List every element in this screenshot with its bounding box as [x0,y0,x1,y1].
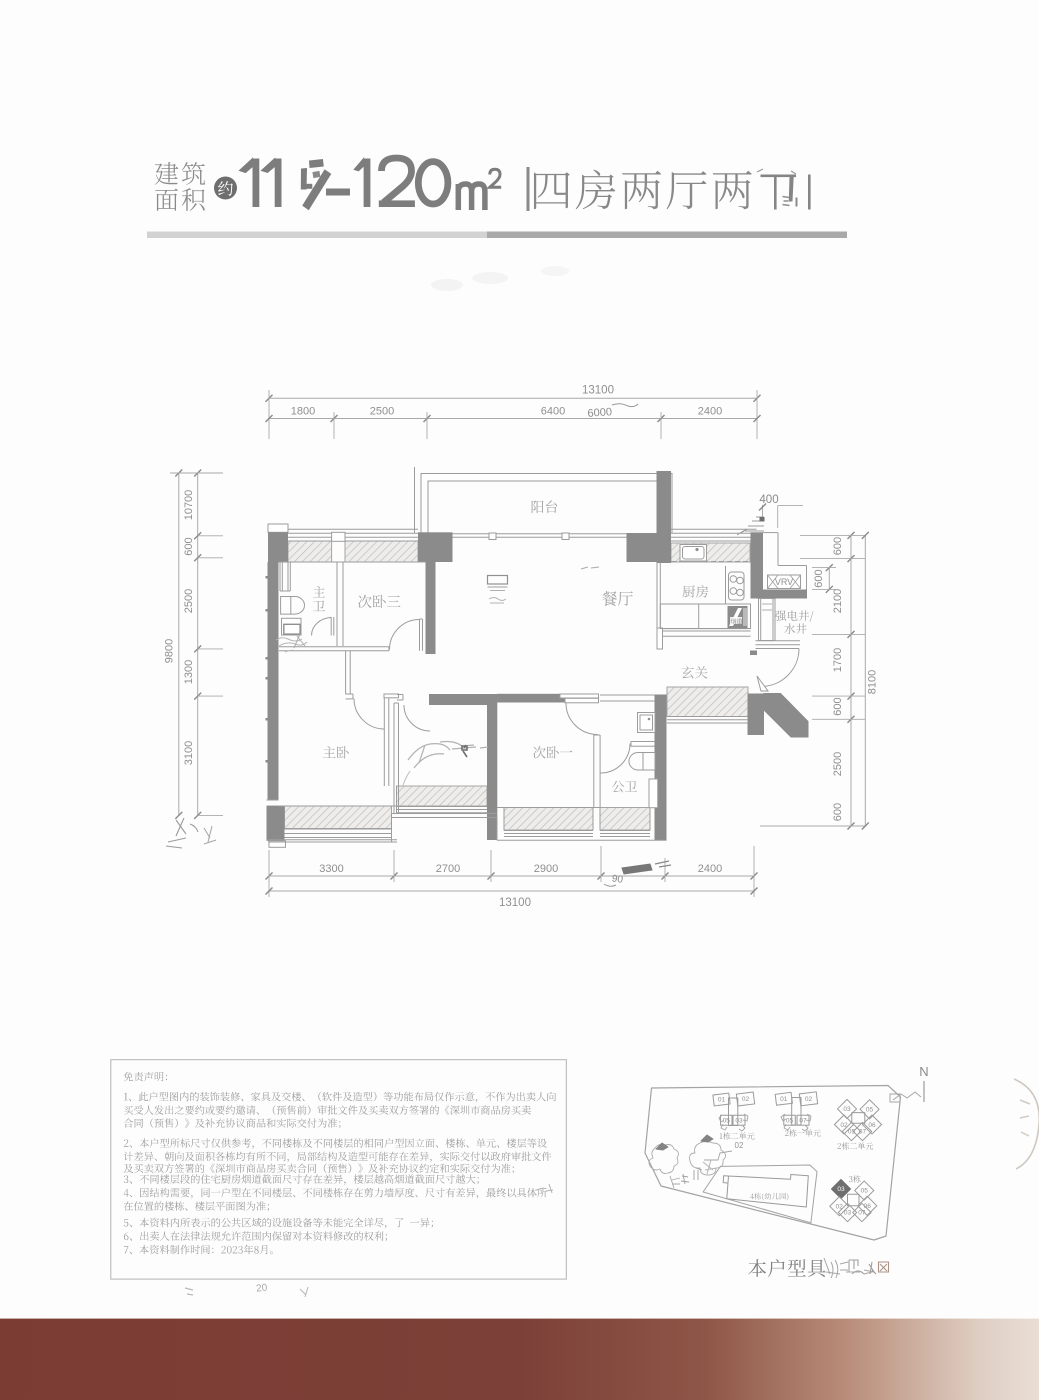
svg-text:02: 02 [836,1204,844,1211]
svg-text:1700: 1700 [832,648,844,672]
svg-text:2400: 2400 [698,863,722,875]
svg-text:3100: 3100 [183,741,195,765]
svg-text:1800: 1800 [291,406,315,418]
svg-text:05: 05 [786,1118,794,1125]
svg-text:01: 01 [718,1097,726,1104]
svg-text:2500: 2500 [832,752,844,776]
svg-text:05: 05 [861,1188,869,1195]
svg-text:600: 600 [813,569,825,587]
svg-text:N: N [919,1064,928,1079]
svg-text:02: 02 [840,1122,848,1129]
svg-text:10700: 10700 [183,490,195,521]
svg-text:02: 02 [742,1096,750,1103]
svg-text:6400: 6400 [541,406,565,418]
svg-text:05: 05 [723,1118,731,1125]
svg-text:07: 07 [799,1118,807,1125]
svg-text:20: 20 [256,1282,269,1294]
svg-text:03: 03 [843,1106,851,1113]
svg-text:600: 600 [183,537,195,555]
svg-text:400: 400 [759,494,778,506]
svg-text:2900: 2900 [534,863,558,875]
svg-text:05: 05 [866,1107,874,1114]
svg-text:2100: 2100 [832,589,844,613]
svg-text:07: 07 [858,1210,866,1217]
svg-text:9800: 9800 [164,639,176,663]
svg-text:600: 600 [832,537,844,555]
svg-text:13100: 13100 [499,897,531,909]
svg-text:8100: 8100 [867,670,879,694]
svg-text:01: 01 [780,1096,788,1103]
svg-text:6000: 6000 [587,406,612,420]
svg-text:600: 600 [832,803,844,821]
svg-text:3300: 3300 [319,863,343,875]
svg-text:2500: 2500 [370,406,394,418]
svg-text:03: 03 [844,1210,852,1217]
svg-text:600: 600 [832,697,844,715]
svg-text:2700: 2700 [436,863,460,875]
svg-text:VRV: VRV [775,577,793,587]
svg-text:02: 02 [805,1096,813,1103]
svg-text:06: 06 [868,1122,876,1129]
svg-text:13100: 13100 [582,385,614,397]
svg-text:1300: 1300 [183,660,195,684]
svg-text:2400: 2400 [698,406,722,418]
svg-text:03: 03 [837,1186,845,1193]
svg-text:2500: 2500 [183,589,195,613]
svg-text:07: 07 [859,1129,867,1136]
svg-text:90: 90 [611,873,624,886]
svg-text:03: 03 [735,1118,743,1125]
svg-text:02: 02 [735,1141,744,1150]
